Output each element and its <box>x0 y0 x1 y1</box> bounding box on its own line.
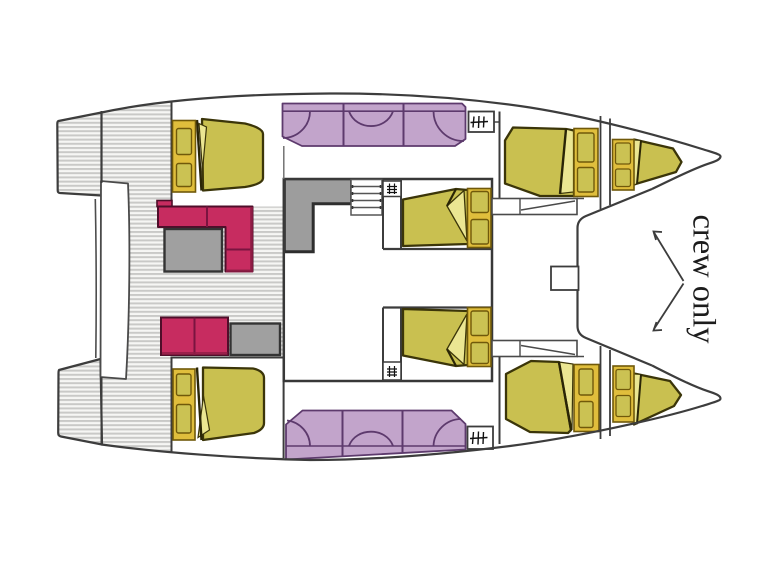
svg-text:crew only: crew only <box>686 214 722 344</box>
